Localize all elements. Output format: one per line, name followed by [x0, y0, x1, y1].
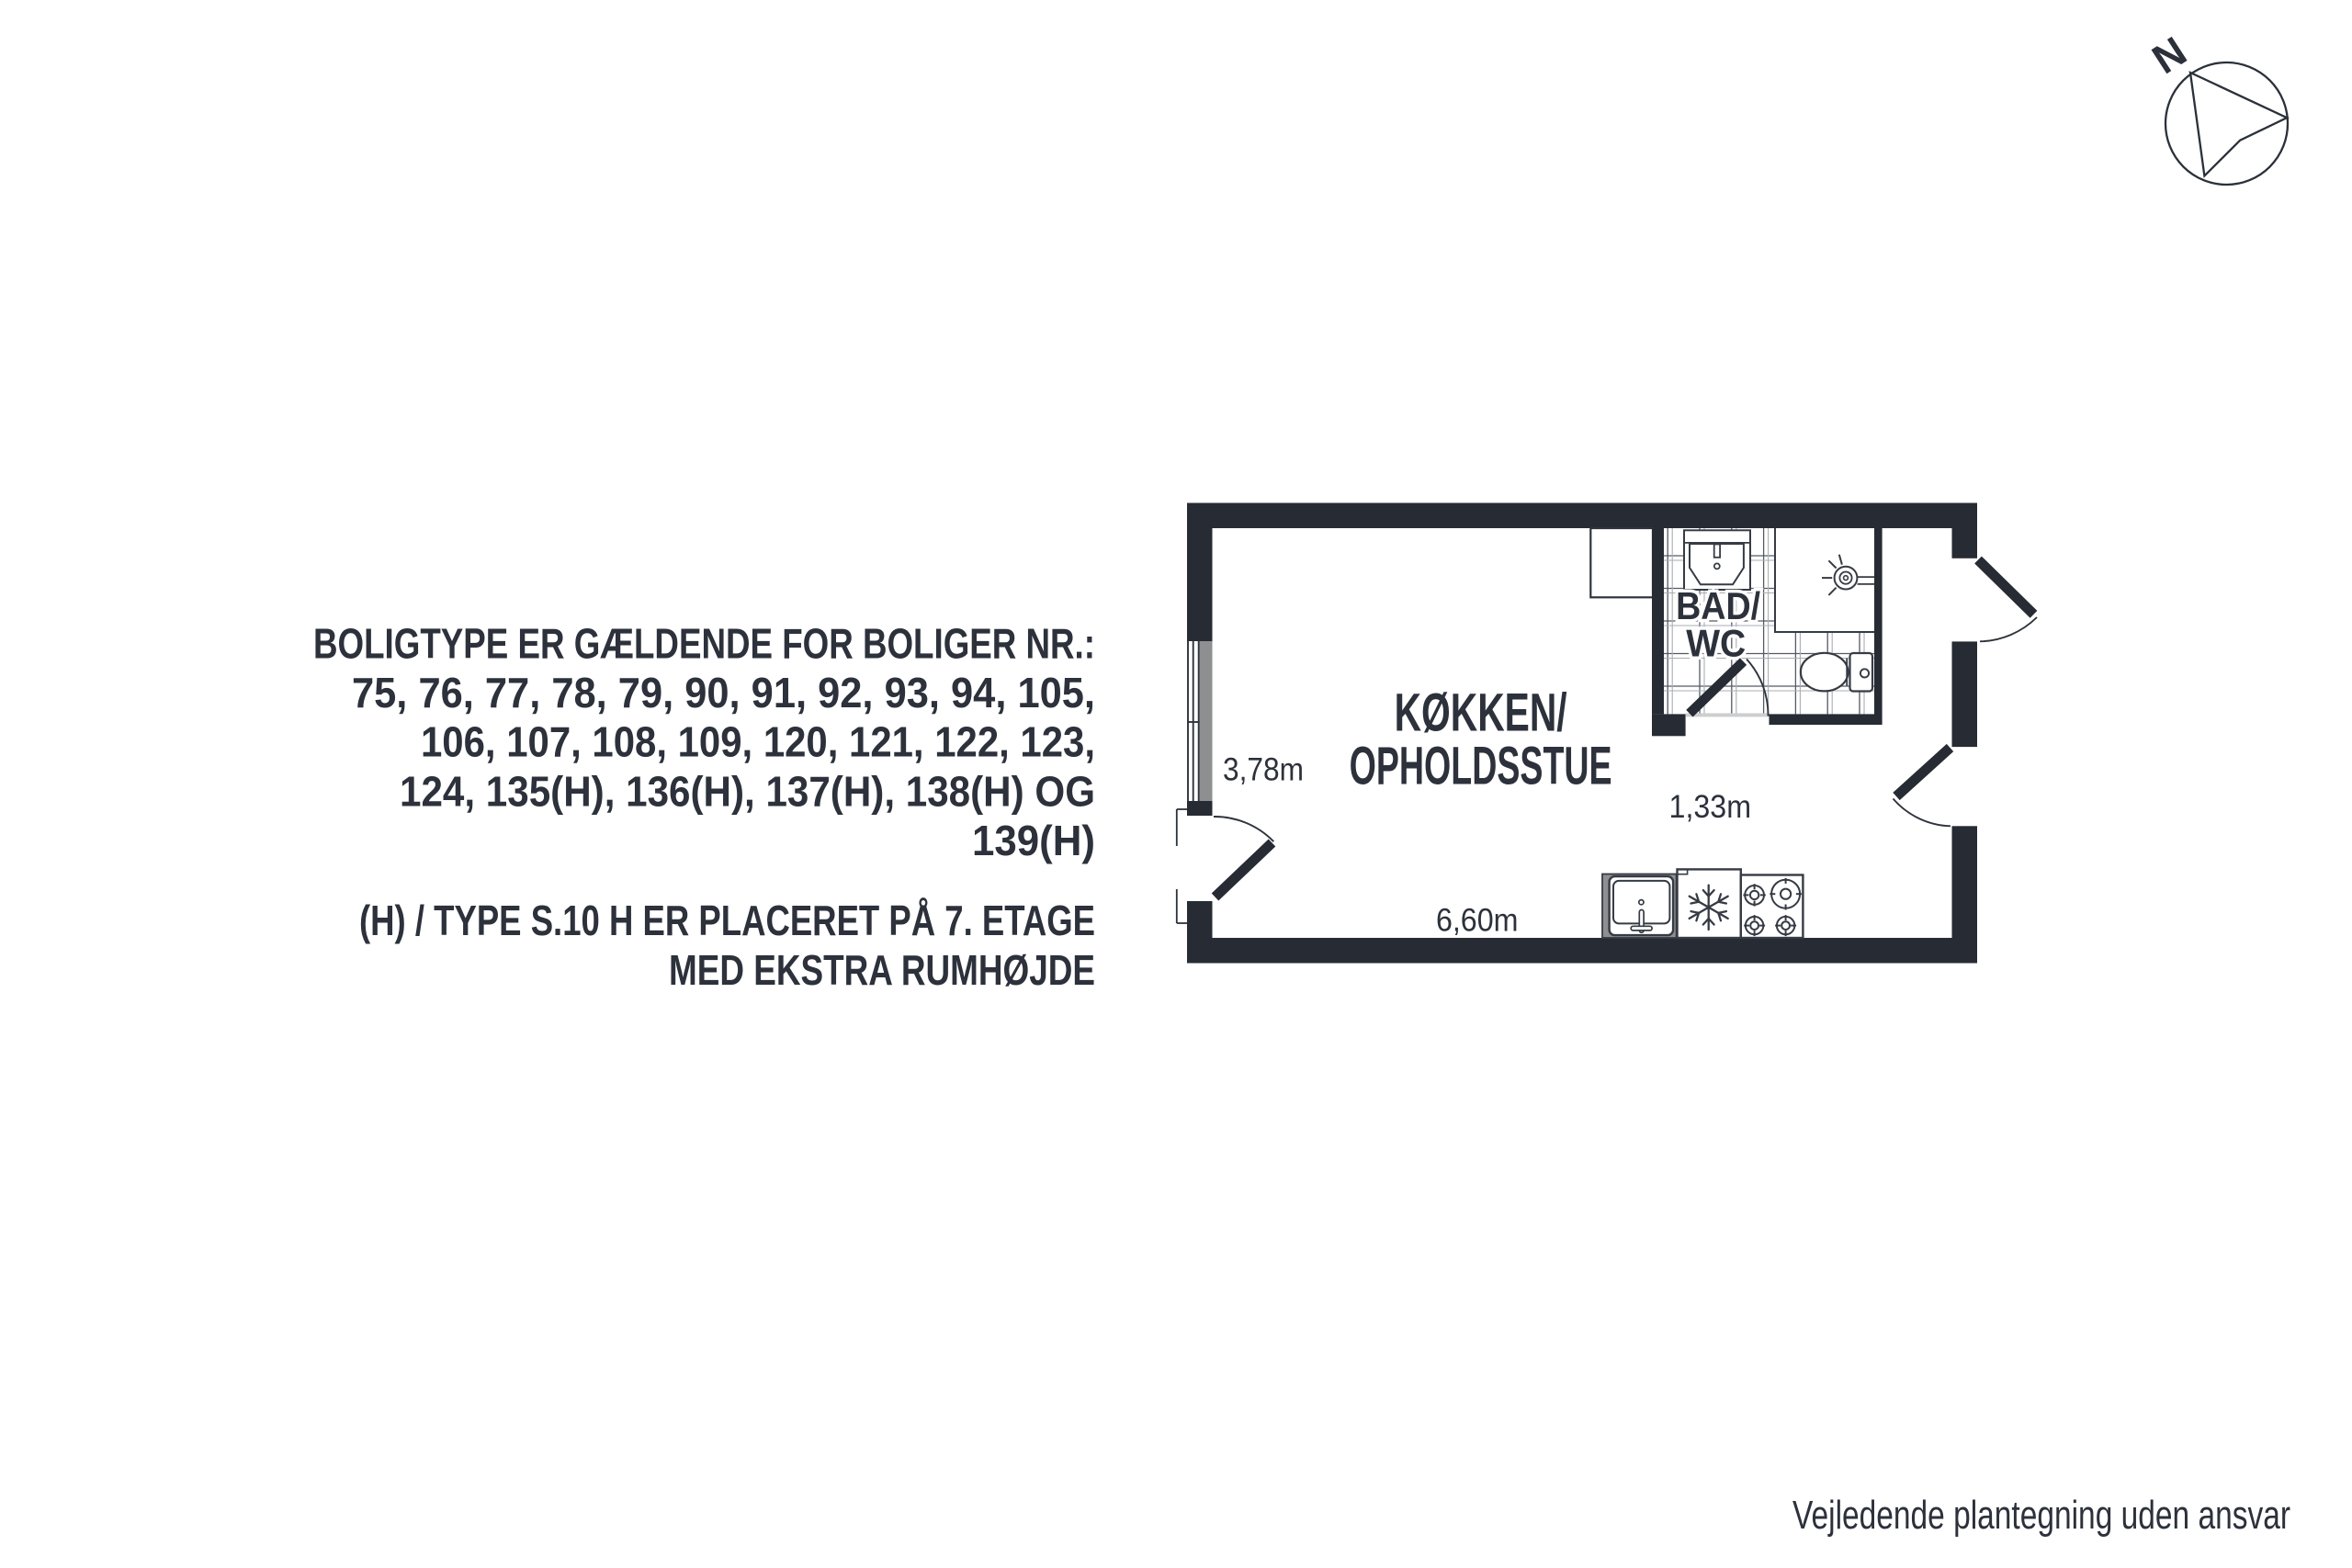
svg-text:6,60m: 6,60m — [1436, 901, 1519, 938]
svg-text:106, 107, 108, 109, 120, 121,: 106, 107, 108, 109, 120, 121, 122, 123, — [421, 718, 1095, 766]
svg-text:139(H): 139(H) — [972, 817, 1095, 864]
svg-text:3,78m: 3,78m — [1223, 751, 1304, 788]
svg-text:(H) / TYPE S.10 H ER PLACERET: (H) / TYPE S.10 H ER PLACERET PÅ 7. ETAG… — [359, 897, 1095, 944]
svg-text:Vejledende plantegning uden an: Vejledende plantegning uden ansvar — [1792, 1493, 2290, 1538]
svg-text:WC: WC — [1686, 622, 1746, 665]
svg-text:KØKKEN/: KØKKEN/ — [1395, 683, 1567, 743]
svg-text:75, 76, 77, 78, 79, 90, 91, 92: 75, 76, 77, 78, 79, 90, 91, 92, 93, 94, … — [352, 669, 1095, 716]
svg-text:1,33m: 1,33m — [1669, 788, 1752, 825]
svg-text:OPHOLDSSTUE: OPHOLDSSTUE — [1350, 737, 1612, 796]
svg-text:124, 135(H), 136(H), 137(H), 1: 124, 135(H), 136(H), 137(H), 138(H) OG — [400, 767, 1095, 815]
svg-text:BOLIGTYPE ER GÆLDENDE FOR BOLI: BOLIGTYPE ER GÆLDENDE FOR BOLIGER NR.: — [313, 619, 1095, 667]
svg-text:MED EKSTRA RUMHØJDE: MED EKSTRA RUMHØJDE — [669, 946, 1095, 994]
